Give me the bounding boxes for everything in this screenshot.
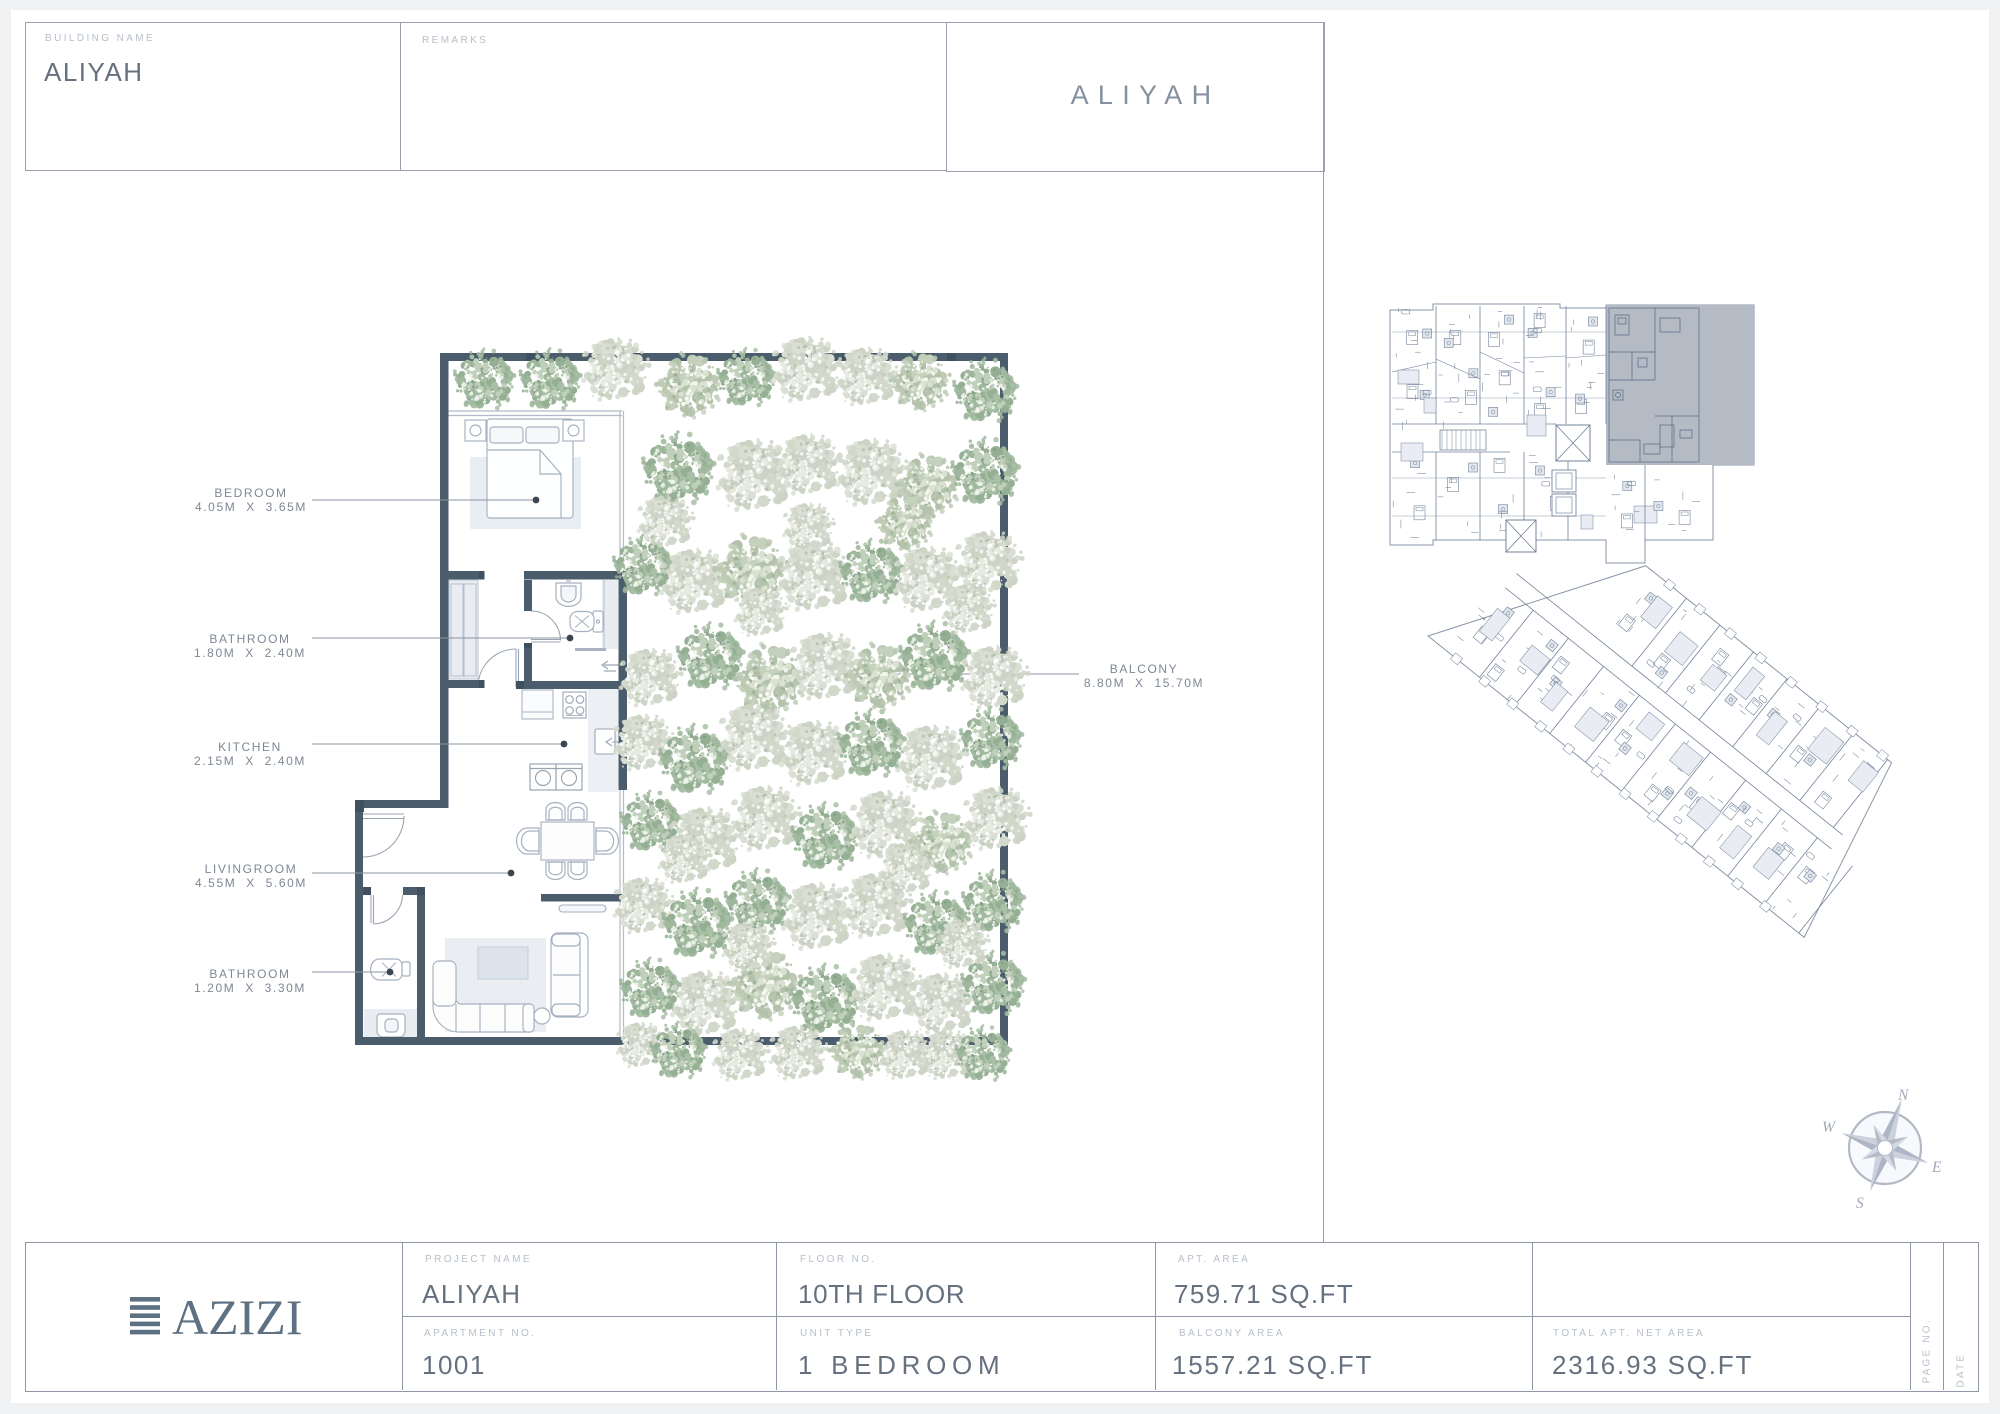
svg-text:S: S [1856, 1195, 1864, 1212]
svg-text:N: N [1897, 1087, 1910, 1104]
svg-text:E: E [1931, 1159, 1942, 1176]
svg-text:AZIZI: AZIZI [172, 1295, 303, 1337]
svg-text:W: W [1822, 1119, 1837, 1136]
